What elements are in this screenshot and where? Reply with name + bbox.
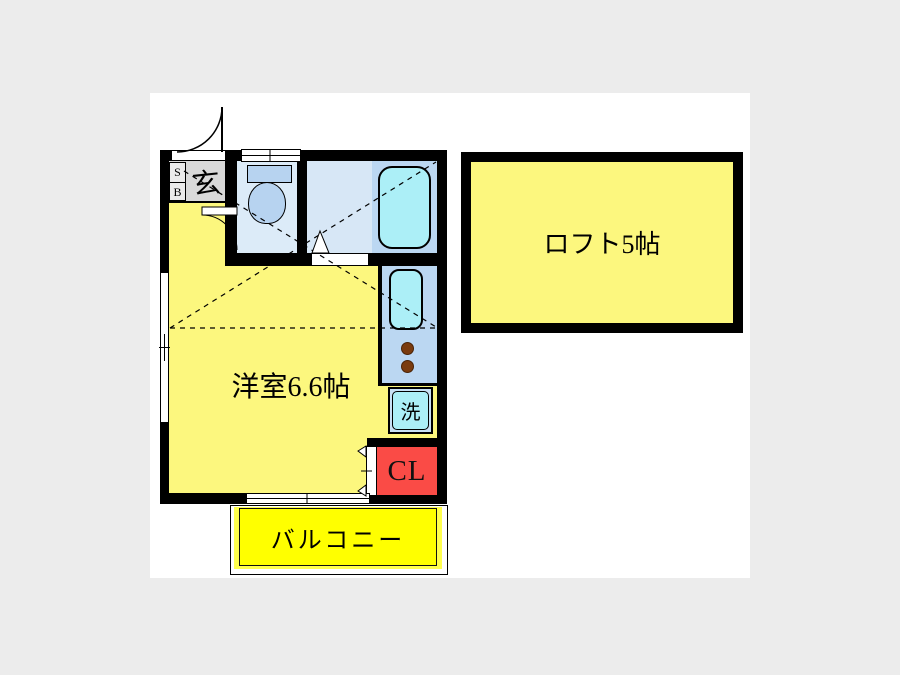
shoe-box-label-top: S: [170, 163, 185, 183]
balcony-label: バルコニー: [239, 508, 437, 566]
entrance-label: 玄: [184, 160, 228, 204]
window-balcony: [246, 493, 370, 504]
bathroom-doorway-opening: [312, 254, 368, 265]
window-toilet: [241, 149, 301, 162]
floorplan-page: 洗 CL S B 玄 洋室6.6帖 ロフト5帖 バルコニー: [0, 0, 900, 675]
stove-burner-icon: [401, 342, 414, 355]
toilet-bowl: [248, 182, 286, 224]
kitchen-sink: [389, 269, 423, 330]
bathtub: [378, 166, 431, 249]
loft-room-label: ロフト5帖: [471, 162, 733, 323]
window-left-wall: [160, 272, 169, 423]
closet-label: CL: [377, 447, 437, 495]
main-room-label: 洋室6.6帖: [171, 366, 411, 404]
toilet-tank: [247, 165, 292, 183]
entrance-doorway-opening: [172, 150, 225, 161]
wall-entrance-toilet: [225, 161, 237, 253]
shoe-box-label-bottom: B: [170, 183, 185, 202]
wall-toilet-bath: [297, 161, 307, 253]
closet-folding-door: [366, 446, 377, 496]
